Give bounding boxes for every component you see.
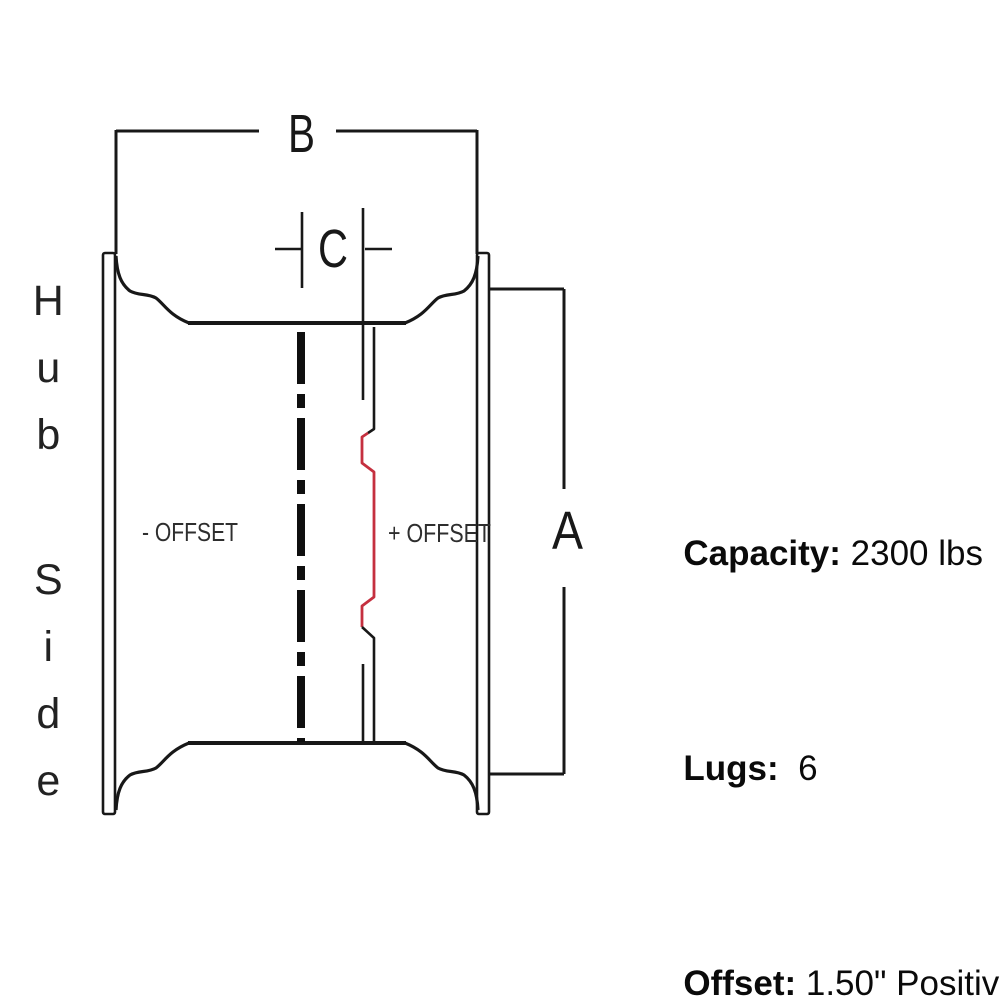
dimension-a-top-line <box>489 289 564 489</box>
spec-row-offset: Offset: 1.50" Positive <box>625 919 1000 1000</box>
dimension-a-bottom-line <box>489 587 564 774</box>
spec-label: Offset: <box>683 964 796 1000</box>
rim-profile-bottom <box>116 743 478 810</box>
rim-profile-top <box>116 256 478 323</box>
negative-offset-label: - OFFSET <box>142 517 238 547</box>
positive-offset-label: + OFFSET <box>388 518 491 548</box>
spec-label: Capacity: <box>683 534 841 573</box>
hub-side-word-2: Side <box>24 556 71 824</box>
hub-side-caption: Hub Side <box>24 277 71 824</box>
spec-row-lugs: Lugs: 6 <box>625 704 1000 833</box>
dimension-a-label: A <box>552 501 583 561</box>
mounting-face-red-highlight <box>362 433 374 627</box>
mounting-face-top-black <box>368 327 374 433</box>
left-rim-flange <box>103 253 115 814</box>
dimension-c-left-tick <box>275 212 302 288</box>
spec-list: Capacity: 2300 lbs Lugs: 6 Offset: 1.50"… <box>625 403 1000 1000</box>
wheel-spec-diagram-page: B C A <box>0 0 1000 1000</box>
dimension-c-label: C <box>318 219 348 279</box>
dimension-b-right-line <box>336 130 477 254</box>
dimension-b-left-line <box>116 130 259 254</box>
dimension-b-label: B <box>288 104 315 164</box>
spec-value: 2300 lbs <box>841 534 983 573</box>
spec-value: 6 <box>779 749 818 788</box>
spec-row-capacity: Capacity: 2300 lbs <box>625 489 1000 618</box>
hub-side-word-1: Hub <box>24 277 71 478</box>
spec-value: 1.50" Positive <box>796 964 1000 1000</box>
spec-label: Lugs: <box>683 749 778 788</box>
